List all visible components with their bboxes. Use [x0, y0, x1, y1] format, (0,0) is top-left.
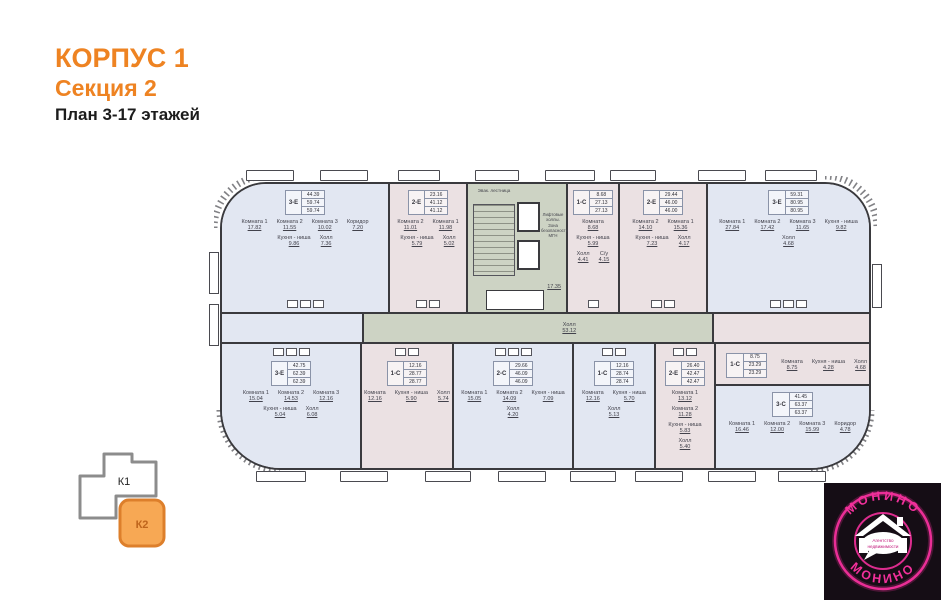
unit-type-table: 2-Е 26.40 42.47 42.47 [665, 361, 705, 386]
floors-subtitle: План 3-17 этажей [55, 104, 200, 127]
room-label: Кухня - ниша4.28 [812, 359, 845, 371]
apartment-unit-2e-top: 2-Е 23.16 41.12 41.12 Комната 211.01 Ком… [390, 184, 468, 312]
unit-type: 2-С [494, 362, 511, 385]
logo-tagline-line1: Агентство [872, 538, 894, 543]
room-label: Кухня - ниша7.09 [532, 390, 565, 402]
apartment-unit-2e-top-right: 2-Е 29.44 46.00 46.00 Комната 214.10 Ком… [620, 184, 708, 312]
unit-type: 1-С [595, 362, 612, 385]
balcony [570, 471, 616, 482]
balcony [610, 170, 656, 181]
room-label: Комната8.75 [781, 359, 803, 371]
unit-type-table: 1-С 12.16 28.74 28.74 [594, 361, 635, 386]
unit-type: 3-Е [272, 362, 288, 385]
bathroom-fixtures [395, 348, 419, 357]
corridor: Холл 53.12 [364, 314, 712, 342]
room-label: Кухня - ниша7.23 [635, 235, 668, 247]
room-label: Холл5.40 [679, 438, 692, 450]
room-labels: Комната12.16 Кухня - ниша5.90 Холл5.74 [364, 390, 450, 402]
room-label: Холл5.13 [608, 406, 621, 418]
vestibule [486, 290, 544, 310]
keyplan-label-k1: К1 [118, 476, 131, 488]
unit-type-table: 2-С 29.66 46.09 46.09 [493, 361, 534, 386]
room-label: Комната 214.09 [496, 390, 522, 402]
room-label: Холл5.74 [437, 390, 450, 402]
core-area-value: 17.35 [547, 284, 561, 290]
balcony [340, 471, 388, 482]
unit-type: 2-Е [409, 191, 425, 214]
room-label: Комната 212.00 [764, 421, 790, 433]
room-label: Кухня - ниша5.99 [576, 235, 609, 247]
unit-type-table: 3-Е 44.39 59.74 59.74 [285, 190, 325, 215]
apartment-unit-2e-bottom: 2-Е 26.40 42.47 42.47 Комната 113.12 Ком… [656, 344, 716, 468]
elevator-lobby-label: Лифтовые холлы. Зона безопасности МГН [541, 212, 565, 239]
room-label: Комната 211.01 [397, 219, 423, 231]
unit-type: 2-Е [666, 362, 682, 385]
unit-type: 3-Е [769, 191, 785, 214]
room-label: Комната12.16 [364, 390, 386, 402]
room-label: Комната12.16 [582, 390, 604, 402]
room-label: Комната 111.98 [433, 219, 459, 231]
bathroom-fixtures [416, 300, 440, 309]
bathroom-fixtures [588, 300, 599, 309]
unit-type-table: 3-Е 59.31 80.95 80.95 [768, 190, 808, 215]
balcony [698, 170, 746, 181]
room-label: Комната 116.46 [729, 421, 755, 433]
apartment-unit-1s-right: 1-С 8.75 23.29 23.29 Комната8.75 Кухня -… [716, 344, 869, 386]
unit-type-table: 1-С 8.68 27.13 27.13 [573, 190, 614, 215]
room-label: Кухня - ниша5.90 [395, 390, 428, 402]
stairs-label: Эвак. лестница [472, 188, 516, 194]
bathroom-fixtures [287, 300, 324, 309]
room-label: Комната 115.04 [243, 390, 269, 402]
room-label: Холл4.17 [678, 235, 691, 247]
speech-bubble: Агентство недвижимости [862, 532, 904, 560]
room-label: Холл4.20 [507, 406, 520, 418]
unit-extension [222, 314, 364, 342]
room-labels: Комната 115.04 Комната 214.53 Комната 31… [224, 390, 358, 418]
room-label: Холл4.68 [854, 359, 867, 371]
balcony [498, 471, 546, 482]
section-title: Секция 2 [55, 74, 200, 104]
room-label: Коридор4.78 [834, 421, 856, 433]
key-plan: К1 К2 [58, 438, 178, 558]
room-label: Кухня - ниша5.83 [668, 422, 701, 434]
room-label: Коридор7.20 [347, 219, 369, 231]
apartment-unit-2s-bottom: 2-С 29.66 46.09 46.09 Комната 115.05 Ком… [454, 344, 574, 468]
staircase [473, 204, 515, 276]
bathroom-fixtures [602, 348, 626, 357]
bathroom-fixtures [651, 300, 675, 309]
balcony [635, 471, 683, 482]
floor-plan: 3-Е 44.39 59.74 59.74 Комната 117.82 Ком… [220, 182, 871, 470]
apartment-unit-1s-top: 1-С 8.68 27.13 27.13 Комната8.68 Кухня -… [568, 184, 620, 312]
room-label: Холл4.41 [577, 251, 590, 263]
room-label: Кухня - ниша9.86 [277, 235, 310, 247]
apartment-unit-1s-bottom: 1-С 12.16 28.77 28.77 Комната12.16 Кухня… [362, 344, 454, 468]
unit-type: 1-С [727, 354, 744, 377]
room-label: Комната8.68 [582, 219, 604, 231]
balcony [545, 170, 595, 181]
balcony [475, 170, 519, 181]
apartment-unit-3e-top-left: 3-Е 44.39 59.74 59.74 Комната 117.82 Ком… [222, 184, 390, 312]
room-label: Комната 113.12 [672, 390, 698, 402]
balcony [425, 471, 471, 482]
stair-elevator-core: Эвак. лестница Лифтовые холлы. Зона безо… [468, 184, 568, 312]
bathroom-fixtures [273, 348, 310, 357]
monino-logo[interactable]: МОНИНО МОНИНО Агентство недвижимости [824, 483, 941, 600]
lodge [872, 264, 882, 308]
room-label: Комната 115.05 [461, 390, 487, 402]
elevator-shaft [517, 240, 540, 270]
unit-type-table: 3-С 41.45 63.37 63.37 [772, 392, 813, 417]
room-label: Комната 211.55 [277, 219, 303, 231]
apartments-row-top: 3-Е 44.39 59.74 59.74 Комната 117.82 Ком… [222, 184, 869, 312]
logo-tagline-line2: недвижимости [868, 544, 899, 549]
room-labels: Комната 116.46 Комната 212.00 Комната 31… [718, 421, 867, 433]
room-labels: Комната 113.12 Комната 211.28 Кухня - ни… [658, 390, 712, 450]
corridor-label: Холл 53.12 [562, 322, 576, 334]
room-label: Комната 315.99 [799, 421, 825, 433]
balcony [708, 471, 756, 482]
room-label: Комната 117.82 [241, 219, 267, 231]
room-label: Холл7.36 [320, 235, 333, 247]
unit-type-table: 2-Е 23.16 41.12 41.12 [408, 190, 448, 215]
room-label: Комната 211.28 [672, 406, 698, 418]
room-label: Кухня - ниша5.04 [263, 406, 296, 418]
bottom-right-units: 1-С 8.75 23.29 23.29 Комната8.75 Кухня -… [716, 344, 869, 468]
balcony [778, 471, 826, 482]
apartment-unit-1s-bottom-2: 1-С 12.16 28.74 28.74 Комната12.16 Кухня… [574, 344, 656, 468]
unit-type: 1-С [574, 191, 591, 214]
apartment-unit-3s-bottom-right: 3-С 41.45 63.37 63.37 Комната 116.46 Ком… [716, 386, 869, 468]
unit-type: 1-С [388, 362, 405, 385]
room-label: Холл6.08 [306, 406, 319, 418]
unit-type-table: 1-С 12.16 28.77 28.77 [387, 361, 428, 386]
room-labels: Комната 117.82 Комната 211.55 Комната 31… [224, 219, 386, 247]
unit-type-table: 2-Е 29.44 46.00 46.00 [643, 190, 683, 215]
room-label: Холл4.68 [782, 235, 795, 247]
room-labels: Комната12.16 Кухня - ниша5.70 Холл5.13 [576, 390, 652, 418]
building-outline: 3-Е 44.39 59.74 59.74 Комната 117.82 Ком… [220, 182, 871, 470]
floor-plan-page: КОРПУС 1 Секция 2 План 3-17 этажей [0, 0, 941, 600]
unit-type: 2-Е [644, 191, 660, 214]
unit-type: 3-Е [286, 191, 302, 214]
unit-type: 3-С [773, 393, 790, 416]
room-label: Комната 214.10 [632, 219, 658, 231]
room-label: Комната 312.16 [313, 390, 339, 402]
room-labels: Комната8.68 Кухня - ниша5.99 Холл4.41 С/… [570, 219, 616, 263]
room-label: Кухня - ниша9.82 [825, 219, 858, 231]
balcony [765, 170, 817, 181]
balcony [246, 170, 294, 181]
lodge [209, 252, 219, 294]
balcony [256, 471, 306, 482]
bathroom-fixtures [673, 348, 697, 357]
unit-type-table: 1-С 8.75 23.29 23.29 [726, 353, 767, 378]
room-labels: Комната 115.05 Комната 214.09 Кухня - ни… [456, 390, 570, 418]
apartment-unit-3e-top-right: 3-Е 59.31 80.95 80.95 Комната 127.84 Ком… [708, 184, 869, 312]
apartments-row-bottom: 3-Е 42.75 62.39 62.39 Комната 115.04 Ком… [222, 344, 869, 468]
room-labels: Комната8.75 Кухня - ниша4.28 Холл4.68 [781, 359, 867, 371]
room-label: Холл5.02 [443, 235, 456, 247]
page-header: КОРПУС 1 Секция 2 План 3-17 этажей [55, 44, 200, 127]
room-labels: Комната 214.10 Комната 115.36 Кухня - ни… [622, 219, 704, 247]
room-label: Кухня - ниша5.79 [400, 235, 433, 247]
bathroom-fixtures [770, 300, 807, 309]
building-title: КОРПУС 1 [55, 44, 200, 74]
room-label: Комната 311.65 [789, 219, 815, 231]
keyplan-label-k2: К2 [136, 519, 149, 531]
room-label: Комната 214.53 [278, 390, 304, 402]
corridor-row: Холл 53.12 [222, 312, 869, 344]
bathroom-fixtures [495, 348, 532, 357]
balcony [398, 170, 440, 181]
unit-extension [712, 314, 869, 342]
room-labels: Комната 127.84 Комната 217.42 Комната 31… [710, 219, 867, 247]
unit-type-table: 3-Е 42.75 62.39 62.39 [271, 361, 311, 386]
balcony [320, 170, 368, 181]
lodge [209, 304, 219, 346]
room-label: Комната 115.36 [668, 219, 694, 231]
room-labels: Комната 211.01 Комната 111.98 Кухня - ни… [392, 219, 464, 247]
room-label: Комната 217.42 [754, 219, 780, 231]
room-label: Комната 310.02 [312, 219, 338, 231]
room-label: Кухня - ниша5.70 [613, 390, 646, 402]
apartment-unit-3e-bottom-left: 3-Е 42.75 62.39 62.39 Комната 115.04 Ком… [222, 344, 362, 468]
elevator-shaft [517, 202, 540, 232]
room-label: С/у4.15 [599, 251, 610, 263]
room-label: Комната 127.84 [719, 219, 745, 231]
